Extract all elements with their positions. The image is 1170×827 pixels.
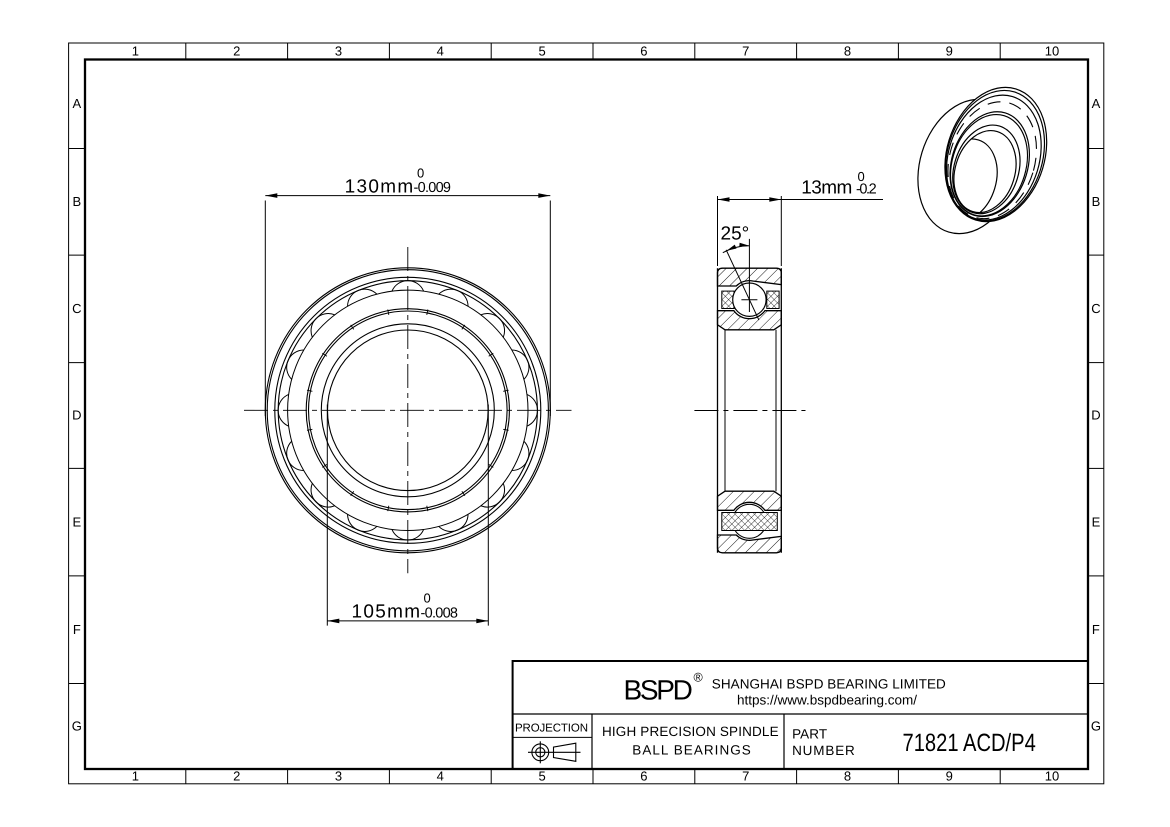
- svg-text:PART: PART: [792, 727, 827, 742]
- svg-text:BSPD: BSPD: [624, 675, 693, 706]
- svg-text:7: 7: [742, 769, 749, 784]
- svg-text:6: 6: [640, 769, 647, 784]
- svg-text:2: 2: [233, 769, 240, 784]
- svg-text:4: 4: [437, 769, 444, 784]
- svg-text:F: F: [1092, 622, 1100, 637]
- svg-text:10: 10: [1045, 769, 1059, 784]
- svg-text:71821 ACD/P4: 71821 ACD/P4: [903, 729, 1036, 757]
- svg-text:NUMBER: NUMBER: [792, 743, 855, 758]
- svg-text:6: 6: [640, 44, 647, 59]
- svg-text:5: 5: [538, 44, 545, 59]
- svg-text:0: 0: [424, 591, 431, 606]
- svg-text:105mm: 105mm: [352, 601, 421, 622]
- svg-text:1: 1: [132, 44, 139, 59]
- svg-text:G: G: [1091, 719, 1101, 734]
- svg-text:PROJECTION: PROJECTION: [515, 723, 588, 735]
- svg-text:HIGH PRECISION SPINDLE: HIGH PRECISION SPINDLE: [602, 724, 779, 739]
- svg-text:SHANGHAI BSPD BEARING LIMITED: SHANGHAI BSPD BEARING LIMITED: [712, 676, 946, 691]
- svg-text:-0.2: -0.2: [856, 182, 877, 198]
- svg-text:9: 9: [946, 44, 953, 59]
- svg-text:A: A: [1092, 96, 1101, 111]
- svg-text:13mm: 13mm: [801, 178, 852, 199]
- svg-text:4: 4: [437, 44, 444, 59]
- svg-text:7: 7: [742, 44, 749, 59]
- svg-text:B: B: [1092, 194, 1101, 209]
- svg-text:5: 5: [538, 769, 545, 784]
- svg-text:®: ®: [694, 671, 704, 685]
- svg-text:-0.009: -0.009: [414, 180, 452, 196]
- svg-text:10: 10: [1045, 44, 1059, 59]
- svg-text:https://www.bspdbearing.com/: https://www.bspdbearing.com/: [737, 693, 917, 708]
- svg-text:-0.008: -0.008: [421, 606, 459, 622]
- svg-text:F: F: [73, 622, 81, 637]
- svg-text:D: D: [72, 408, 81, 423]
- svg-text:E: E: [72, 514, 81, 529]
- svg-text:G: G: [72, 719, 82, 734]
- svg-text:9: 9: [946, 769, 953, 784]
- svg-text:E: E: [1092, 514, 1101, 529]
- svg-text:A: A: [72, 96, 81, 111]
- svg-text:25°: 25°: [721, 224, 750, 245]
- svg-text:3: 3: [335, 44, 342, 59]
- svg-text:130mm: 130mm: [345, 176, 414, 197]
- svg-text:1: 1: [132, 769, 139, 784]
- svg-text:3: 3: [335, 769, 342, 784]
- svg-text:8: 8: [844, 44, 851, 59]
- svg-text:BALL BEARINGS: BALL BEARINGS: [632, 743, 751, 758]
- svg-text:0: 0: [417, 166, 424, 181]
- svg-text:2: 2: [233, 44, 240, 59]
- svg-text:D: D: [1091, 408, 1100, 423]
- svg-text:C: C: [1091, 301, 1100, 316]
- svg-text:8: 8: [844, 769, 851, 784]
- svg-text:B: B: [72, 194, 81, 209]
- svg-text:C: C: [72, 301, 81, 316]
